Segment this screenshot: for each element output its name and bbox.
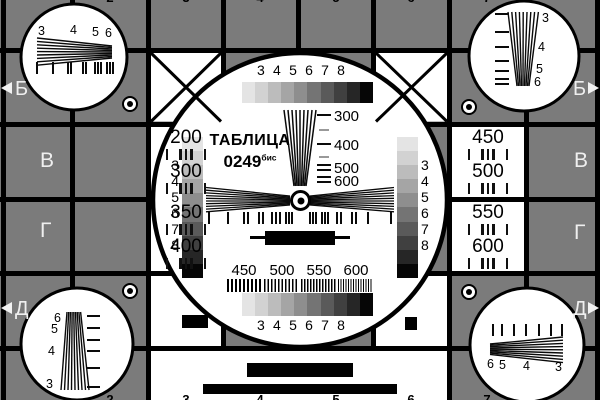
corner-digit: 4 — [535, 40, 548, 54]
tr-tick-marks — [495, 0, 509, 90]
scale-digit: 3 — [257, 62, 265, 78]
scale-digit: 5 — [421, 189, 435, 205]
gray-step — [268, 82, 281, 103]
gray-step — [397, 193, 418, 207]
scale-digit: 8 — [337, 62, 345, 78]
tick-pattern — [151, 148, 221, 160]
corner-digit: 3 — [539, 11, 552, 25]
black-rect-left — [182, 315, 208, 328]
gray-step — [347, 293, 360, 316]
corner-digit: 4 — [45, 344, 58, 358]
corner-digit: 6 — [531, 75, 544, 89]
gray-step — [397, 151, 418, 165]
bullseye-icon — [122, 96, 138, 112]
corner-digit: 6 — [102, 26, 115, 40]
gray-step — [294, 293, 307, 316]
scale-digit: 5 — [289, 317, 297, 333]
scale-digit: 4 — [273, 317, 281, 333]
cell-number: 400 — [151, 237, 221, 257]
wedge-dash — [317, 176, 331, 178]
bl-tick-marks — [87, 300, 100, 395]
grating-label-500: 500 — [262, 262, 302, 279]
row-letter-left-v: В — [40, 150, 54, 172]
gray-step — [255, 82, 268, 103]
corner-digit: 3 — [35, 24, 48, 38]
bullseye-icon — [461, 284, 477, 300]
gray-step — [360, 293, 373, 316]
row-letter-right-b: Б — [573, 78, 586, 100]
row-letter-left-g: Г — [40, 220, 51, 242]
scale-digit: 7 — [421, 221, 435, 237]
wedge-label-400: 400 — [334, 137, 359, 154]
gray-step — [242, 82, 255, 103]
cell-number: 300 — [151, 162, 221, 182]
corner-digit: 4 — [520, 359, 533, 373]
grating-label-600: 600 — [336, 262, 376, 279]
gray-step — [347, 82, 360, 103]
edge-digit-top: 6 — [407, 0, 414, 5]
edge-digit-bottom: 5 — [332, 392, 339, 400]
scale-digit: 4 — [421, 173, 435, 189]
grayscale-top — [242, 82, 373, 103]
gray-step — [397, 264, 418, 278]
wedge-dash — [319, 129, 329, 131]
grating-label-550: 550 — [299, 262, 339, 279]
grayscale-bottom — [242, 293, 373, 316]
edge-digit-top: 5 — [332, 0, 339, 5]
wedge-dash — [319, 156, 329, 158]
scale-digit: 7 — [321, 317, 329, 333]
cell-number: 450 — [452, 128, 524, 148]
gray-step — [307, 82, 320, 103]
reference-bar-wing — [250, 236, 265, 239]
right-scale-digits: 345678 — [421, 157, 435, 244]
br-tick-marks — [490, 324, 565, 336]
wedge-dash — [317, 181, 331, 183]
edge-digit-bottom: 7 — [483, 392, 490, 400]
scale-digit: 4 — [273, 62, 281, 78]
cell-number: 200 — [151, 128, 221, 148]
gray-step — [397, 222, 418, 236]
tick-pattern — [151, 257, 221, 269]
gray-step — [334, 293, 347, 316]
gray-step — [397, 165, 418, 179]
x-box-right — [376, 53, 447, 122]
corner-digit: 5 — [89, 25, 102, 39]
gray-step — [307, 293, 320, 316]
tick-pattern — [452, 223, 524, 235]
row-letter-right-d: Д — [573, 298, 587, 320]
row-arrow-left-d — [1, 302, 12, 314]
corner-digit: 3 — [43, 377, 56, 391]
row-letter-left-d: Д — [15, 298, 29, 320]
grayscale-right — [397, 137, 418, 278]
wedge-dash — [317, 143, 331, 145]
scale-digit: 6 — [305, 317, 313, 333]
tl-tick-marks — [36, 62, 114, 74]
edge-digit-bottom: 4 — [256, 392, 263, 400]
bottom-scale-digits: 345678 — [257, 317, 345, 333]
bullseye-icon — [122, 283, 138, 299]
bottom-bar-long — [203, 384, 397, 394]
edge-digit-bottom: 3 — [182, 392, 189, 400]
cell-number: 350 — [151, 203, 221, 223]
scale-digit: 3 — [257, 317, 265, 333]
right-lower-cell-content: 550 600 — [452, 203, 524, 269]
edge-digit-top: 2 — [106, 0, 113, 5]
row-arrow-left-b — [1, 82, 12, 94]
resolution-grating-strip — [227, 279, 373, 292]
gray-step — [268, 293, 281, 316]
scale-digit: 8 — [337, 317, 345, 333]
edge-digit-bottom: 2 — [106, 392, 113, 400]
edge-digit-bottom: 6 — [407, 392, 414, 400]
edge-digit-top: 7 — [483, 0, 490, 5]
edge-digit-top: 4 — [256, 0, 263, 5]
gray-step — [242, 293, 255, 316]
gray-step — [334, 82, 347, 103]
gray-step — [281, 82, 294, 103]
gray-step — [397, 250, 418, 264]
bottom-bar-short — [247, 363, 353, 377]
scale-digit: 8 — [421, 237, 435, 253]
top-scale-digits: 345678 — [257, 62, 345, 78]
gray-step — [397, 207, 418, 221]
row-letter-right-g: Г — [574, 222, 585, 244]
wedge-dash — [317, 164, 331, 166]
bullseye-icon — [461, 99, 477, 115]
gray-step — [321, 82, 334, 103]
gray-step — [281, 293, 294, 316]
gray-step — [360, 82, 373, 103]
grating-label-450: 450 — [224, 262, 264, 279]
tick-pattern — [151, 182, 221, 194]
test-card: 345678 ТАБЛИЦА 0249бис 300 400 500 600 3… — [0, 0, 600, 400]
gray-step — [255, 293, 268, 316]
wedge-label-600: 600 — [334, 173, 359, 190]
cell-number: 550 — [452, 203, 524, 223]
wedge-dash — [317, 169, 331, 171]
bullseye-dot — [297, 197, 304, 204]
tick-pattern — [151, 223, 221, 235]
corner-digit: 4 — [67, 23, 80, 37]
right-upper-cell-content: 450 500 — [452, 128, 524, 194]
tick-pattern — [452, 148, 524, 160]
burst-ticks-right — [309, 212, 395, 225]
corner-digit: 5 — [48, 322, 61, 336]
tick-pattern — [452, 257, 524, 269]
row-arrow-right-b — [588, 82, 599, 94]
scale-digit: 3 — [421, 157, 435, 173]
wedge-dash — [317, 114, 331, 116]
tick-pattern — [452, 182, 524, 194]
cell-number: 600 — [452, 237, 524, 257]
black-rect-right — [405, 317, 417, 330]
scale-digit: 6 — [421, 205, 435, 221]
row-letter-right-v: В — [574, 150, 588, 172]
corner-digit: 5 — [533, 62, 546, 76]
wedge-label-300: 300 — [334, 108, 359, 125]
scale-digit: 7 — [321, 62, 329, 78]
gray-step — [294, 82, 307, 103]
cell-number: 500 — [452, 162, 524, 182]
table-number-suffix: бис — [261, 152, 276, 162]
x-box-left — [151, 53, 221, 122]
row-arrow-right-d — [588, 302, 599, 314]
gray-step — [397, 236, 418, 250]
edge-digit-top: 3 — [182, 0, 189, 5]
gray-step — [397, 179, 418, 193]
scale-digit: 5 — [289, 62, 297, 78]
row-letter-left-b: Б — [15, 78, 28, 100]
reference-bar-wing — [335, 236, 350, 239]
gray-step — [397, 137, 418, 151]
table-number-digits: 0249 — [223, 152, 261, 171]
reference-bar — [265, 231, 335, 245]
scale-digit: 6 — [305, 62, 313, 78]
gray-step — [321, 293, 334, 316]
center-bullseye-icon — [290, 190, 311, 211]
left-lower-cell-content: 350 400 — [151, 203, 221, 269]
corner-digit: 3 — [552, 360, 565, 374]
corner-digit: 5 — [496, 358, 509, 372]
left-upper-cell-content: 200 300 — [151, 128, 221, 194]
